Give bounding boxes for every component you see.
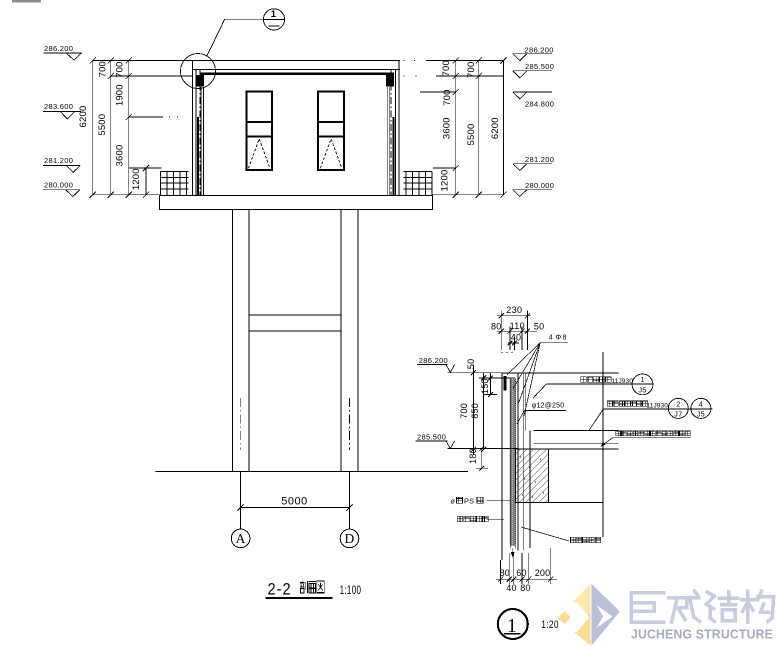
svg-text:700: 700 <box>441 60 452 76</box>
svg-text:1:100: 1:100 <box>340 585 362 597</box>
svg-text:4: 4 <box>699 399 703 408</box>
svg-text:1200: 1200 <box>131 168 142 190</box>
svg-text:Φ: Φ <box>556 332 562 341</box>
svg-text:285.500: 285.500 <box>417 433 446 442</box>
svg-text:11J930: 11J930 <box>612 378 634 385</box>
svg-text:50: 50 <box>534 322 545 332</box>
svg-text:D: D <box>345 531 355 546</box>
svg-text:5500: 5500 <box>466 124 477 146</box>
svg-text:150: 150 <box>480 378 490 394</box>
svg-text:6200: 6200 <box>490 117 501 139</box>
svg-text:281.200: 281.200 <box>44 156 73 165</box>
svg-text:283.600: 283.600 <box>44 102 73 111</box>
svg-text:80: 80 <box>500 568 510 578</box>
svg-text:J5: J5 <box>638 386 646 395</box>
svg-text:280.000: 280.000 <box>44 181 73 190</box>
svg-text:5500: 5500 <box>97 114 108 136</box>
svg-text:J5: J5 <box>697 410 705 419</box>
svg-text:285.500: 285.500 <box>525 62 554 71</box>
svg-text:2: 2 <box>676 399 680 408</box>
svg-text:700: 700 <box>459 403 469 419</box>
svg-text:180: 180 <box>468 448 478 464</box>
svg-text:3600: 3600 <box>442 117 453 139</box>
svg-text:650: 650 <box>470 403 480 419</box>
svg-text:1:20: 1:20 <box>541 619 559 631</box>
svg-text:286.200: 286.200 <box>419 356 448 365</box>
svg-text:4: 4 <box>549 332 553 341</box>
svg-text:3600: 3600 <box>114 145 125 167</box>
svg-text:ø: ø <box>451 498 456 505</box>
svg-text:φ12@250: φ12@250 <box>532 403 565 410</box>
svg-text:A: A <box>236 531 246 546</box>
svg-text:40: 40 <box>506 583 516 593</box>
svg-text:1: 1 <box>271 9 277 20</box>
svg-text:5000: 5000 <box>281 496 307 508</box>
svg-text:50: 50 <box>466 359 476 369</box>
svg-text:80: 80 <box>491 322 502 332</box>
svg-text:60: 60 <box>516 568 526 578</box>
svg-text:40: 40 <box>511 333 522 343</box>
svg-text:1: 1 <box>640 375 644 384</box>
svg-text:11J930: 11J930 <box>647 403 669 410</box>
svg-text:230: 230 <box>506 305 522 315</box>
svg-text:1900: 1900 <box>114 84 125 106</box>
svg-text:200: 200 <box>535 568 551 578</box>
svg-text:280.000: 280.000 <box>525 181 554 190</box>
svg-text:284.800: 284.800 <box>525 99 554 108</box>
svg-text:6200: 6200 <box>78 106 89 128</box>
svg-text:700: 700 <box>466 62 477 78</box>
svg-text:J7: J7 <box>674 410 682 419</box>
svg-text:8: 8 <box>563 332 567 341</box>
svg-text:PS: PS <box>464 496 474 505</box>
svg-text:286.200: 286.200 <box>44 44 73 53</box>
svg-text:2-2: 2-2 <box>268 581 292 599</box>
svg-text:80: 80 <box>520 583 530 593</box>
svg-text:700: 700 <box>114 61 125 77</box>
svg-text:110: 110 <box>510 321 525 331</box>
svg-text:1200: 1200 <box>439 170 450 192</box>
svg-text:281.200: 281.200 <box>525 155 554 164</box>
svg-text:JUCHENG STRUCTURE: JUCHENG STRUCTURE <box>631 627 773 642</box>
svg-text:700: 700 <box>97 61 108 77</box>
svg-text:286.200: 286.200 <box>525 45 554 54</box>
